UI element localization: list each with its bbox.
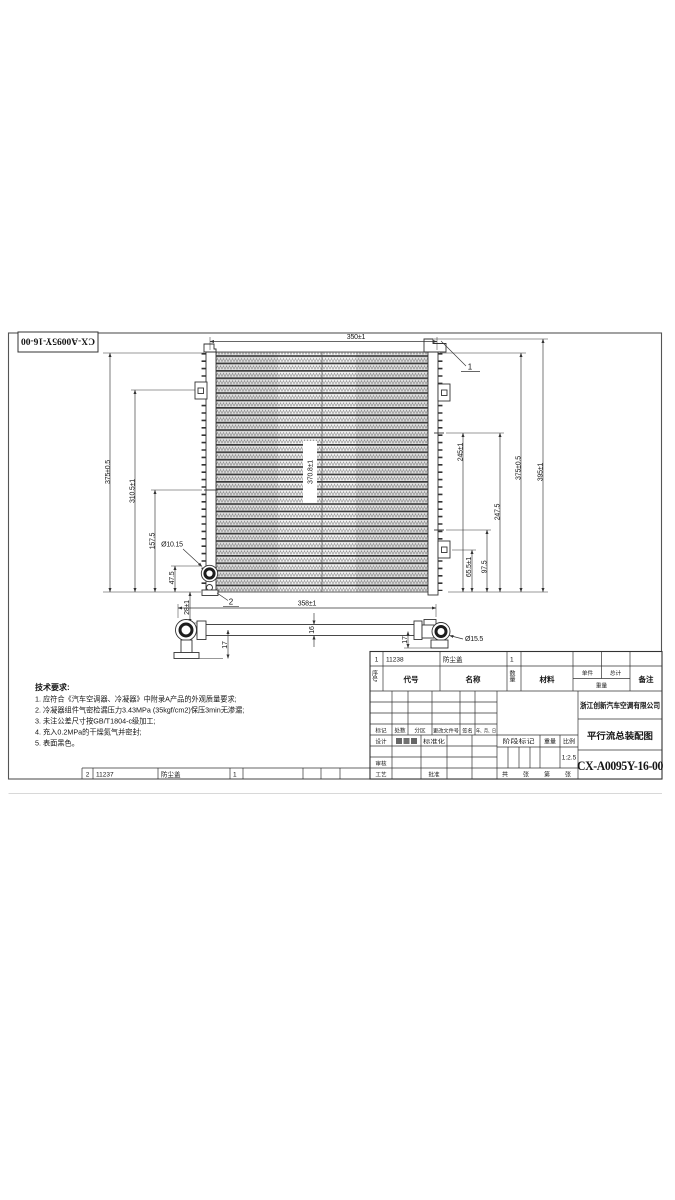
condenser-front-view: 1 2 bbox=[195, 339, 480, 607]
engineering-drawing-sheet: CX-A0095Y-16-00 bbox=[0, 0, 675, 1200]
part1-name: 防尘盖 bbox=[443, 655, 463, 664]
header-name: 名称 bbox=[466, 674, 481, 684]
scale-value: 1:2.5 bbox=[562, 755, 577, 762]
svg-text:97.5: 97.5 bbox=[482, 560, 489, 573]
corner-label-text: CX-A0095Y-16-00 bbox=[21, 336, 95, 346]
svg-text:157.5: 157.5 bbox=[150, 532, 157, 549]
dim-28: 28±1 bbox=[184, 592, 198, 623]
svg-text:358±1: 358±1 bbox=[298, 601, 317, 608]
header-qty: 数量 bbox=[508, 669, 515, 683]
tech-req-item-1: 1. 应符合《汽车空调器、冷凝器》中附录A产品的外观质量要求; bbox=[35, 695, 237, 704]
dim-375-right: 375±0.5 bbox=[516, 353, 523, 592]
drawing-number: CX-A0095Y-16-00 bbox=[577, 758, 663, 773]
pipe-right-foot bbox=[431, 640, 448, 648]
svg-text:16: 16 bbox=[309, 626, 316, 634]
part2-name: 防尘盖 bbox=[161, 770, 181, 779]
svg-text:375±0.5: 375±0.5 bbox=[516, 456, 523, 480]
label-sheet-total: 共 bbox=[502, 771, 508, 779]
svg-text:350±1: 350±1 bbox=[347, 334, 366, 341]
part2-seq: 2 bbox=[86, 772, 90, 779]
dim-47: 47.5 bbox=[169, 566, 201, 592]
left-mount-bracket bbox=[195, 382, 207, 399]
bottom-left-foot bbox=[202, 590, 218, 596]
svg-text:65.5±1: 65.5±1 bbox=[466, 557, 473, 577]
label-process: 工艺 bbox=[375, 772, 387, 779]
header-seq: 序号 bbox=[371, 669, 378, 683]
technical-requirements: 技术要求: 1. 应符合《汽车空调器、冷凝器》中附录A产品的外观质量要求; 2.… bbox=[35, 682, 244, 748]
part1-seq: 1 bbox=[375, 657, 379, 664]
part2-qty: 1 bbox=[233, 772, 237, 779]
tech-req-item-3: 3. 未注公差尺寸按GB/T1804-c级加工; bbox=[35, 717, 156, 726]
svg-text:17: 17 bbox=[222, 641, 229, 649]
corner-label-box: CX-A0095Y-16-00 bbox=[18, 332, 98, 352]
dim-310: 310.5±1 bbox=[130, 390, 196, 592]
right-lower-bracket bbox=[438, 541, 450, 558]
dim-core-width: 370.8±1 bbox=[303, 441, 317, 503]
svg-text:395±1: 395±1 bbox=[538, 462, 545, 481]
left-header-tank bbox=[206, 349, 216, 595]
revision-row: 标记 处数 分区 更改文件号 签名 年、月、日 bbox=[375, 727, 496, 735]
svg-text:Ø15.5: Ø15.5 bbox=[465, 636, 483, 643]
label-date: 年、月、日 bbox=[476, 727, 496, 735]
label-sheet-no: 第 bbox=[544, 771, 550, 779]
parts-row-2: 2 11237 防尘盖 1 bbox=[82, 768, 370, 779]
pipe-right-plate bbox=[414, 621, 422, 640]
designer-signature bbox=[404, 738, 410, 744]
header-unit: 单件 bbox=[582, 669, 594, 677]
header-code: 代号 bbox=[403, 674, 419, 684]
drawing-title: 平行流总装配图 bbox=[587, 730, 653, 741]
dim-395: 395±1 bbox=[538, 339, 545, 592]
header-total: 总计 bbox=[610, 669, 622, 677]
designer-signature bbox=[411, 738, 417, 744]
pipe-side-view: 358±1 16 17 17 Ø15.5 bbox=[174, 601, 483, 659]
tech-req-item-5: 5. 表面黑色。 bbox=[35, 739, 79, 748]
title-block: 1 11238 防尘盖 1 序号 代号 名称 数量 材料 单件 总计 重量 备注… bbox=[370, 652, 663, 780]
label-sign: 签名 bbox=[462, 727, 472, 735]
pipe-right-bore bbox=[436, 627, 446, 637]
right-upper-bracket bbox=[438, 384, 450, 401]
designer-signature bbox=[396, 738, 402, 744]
label-count: 处数 bbox=[394, 727, 406, 735]
label-mark: 标记 bbox=[375, 727, 387, 735]
svg-text:Ø10.15: Ø10.15 bbox=[161, 542, 183, 549]
part1-code: 11238 bbox=[386, 657, 404, 664]
pipe-left-bore bbox=[180, 624, 192, 636]
top-right-fitting bbox=[424, 339, 446, 352]
callout-1-label: 1 bbox=[468, 363, 473, 372]
svg-text:375±0.5: 375±0.5 bbox=[105, 460, 112, 484]
core-shade-right bbox=[356, 352, 428, 592]
callout-2: 2 bbox=[217, 593, 239, 607]
outlet-fitting-bore bbox=[205, 569, 214, 578]
pipe-left-base bbox=[174, 653, 199, 659]
label-design: 设计 bbox=[375, 738, 387, 746]
svg-text:245±1: 245±1 bbox=[458, 442, 465, 461]
dim-width-top: 350±1 bbox=[210, 334, 437, 350]
tech-req-item-2: 2. 冷凝器组件气密检漏压力3.43MPa (35kgf/cm2)保压3min无… bbox=[35, 706, 244, 715]
label-check: 审核 bbox=[375, 760, 387, 768]
header-weight: 重量 bbox=[596, 682, 608, 690]
label-weight: 重量 bbox=[544, 738, 556, 746]
dim-pipe-end-dia: Ø15.5 bbox=[450, 636, 484, 644]
dim-247: 247.5 bbox=[495, 433, 502, 592]
label-approve: 批准 bbox=[428, 771, 440, 779]
label-standardize: 标准化 bbox=[423, 738, 446, 746]
label-sheet-zh2: 张 bbox=[565, 771, 571, 779]
tech-req-title: 技术要求: bbox=[35, 682, 70, 692]
pipe-tube bbox=[197, 625, 419, 636]
part2-code: 11237 bbox=[96, 772, 114, 779]
callout-2-label: 2 bbox=[229, 598, 234, 607]
dim-245: 245±1 bbox=[458, 433, 465, 592]
scanned-page: CX-A0095Y-16-00 bbox=[0, 0, 675, 1200]
label-scale: 比例 bbox=[563, 738, 575, 746]
dim-97: 97.5 bbox=[482, 530, 489, 592]
dim-65: 65.5±1 bbox=[466, 550, 473, 592]
label-stage-mark: 阶段标记 bbox=[503, 738, 535, 746]
company-name: 浙江创新汽车空调有限公司 bbox=[580, 700, 660, 710]
header-material: 材料 bbox=[540, 674, 555, 684]
label-sheet-zh1: 张 bbox=[523, 771, 529, 779]
pipe-left-leg bbox=[181, 640, 192, 653]
dim-375-left: 375±0.5 bbox=[105, 353, 112, 592]
dim-hole-dia: Ø10.15 bbox=[161, 542, 202, 567]
dim-pipe-length: 358±1 bbox=[178, 601, 436, 619]
pipe-left-plate bbox=[197, 621, 206, 640]
svg-text:370.8±1: 370.8±1 bbox=[308, 460, 315, 484]
tech-req-item-4: 4. 充入0.2MPa的干燥氮气并密封; bbox=[35, 728, 142, 737]
svg-text:247.5: 247.5 bbox=[495, 503, 502, 520]
part1-qty: 1 bbox=[510, 657, 514, 664]
dim-pipe-height: 16 bbox=[309, 613, 316, 647]
svg-text:47.5: 47.5 bbox=[169, 571, 176, 584]
svg-text:310.5±1: 310.5±1 bbox=[130, 479, 137, 503]
svg-text:17: 17 bbox=[402, 636, 409, 644]
label-change-doc: 更改文件号 bbox=[433, 727, 459, 735]
callout-1: 1 bbox=[441, 341, 480, 372]
svg-text:28±1: 28±1 bbox=[184, 600, 191, 615]
right-header-tank bbox=[428, 349, 438, 595]
label-zone: 分区 bbox=[414, 727, 426, 735]
core-shade-left bbox=[216, 352, 278, 592]
header-remark: 备注 bbox=[638, 674, 654, 684]
